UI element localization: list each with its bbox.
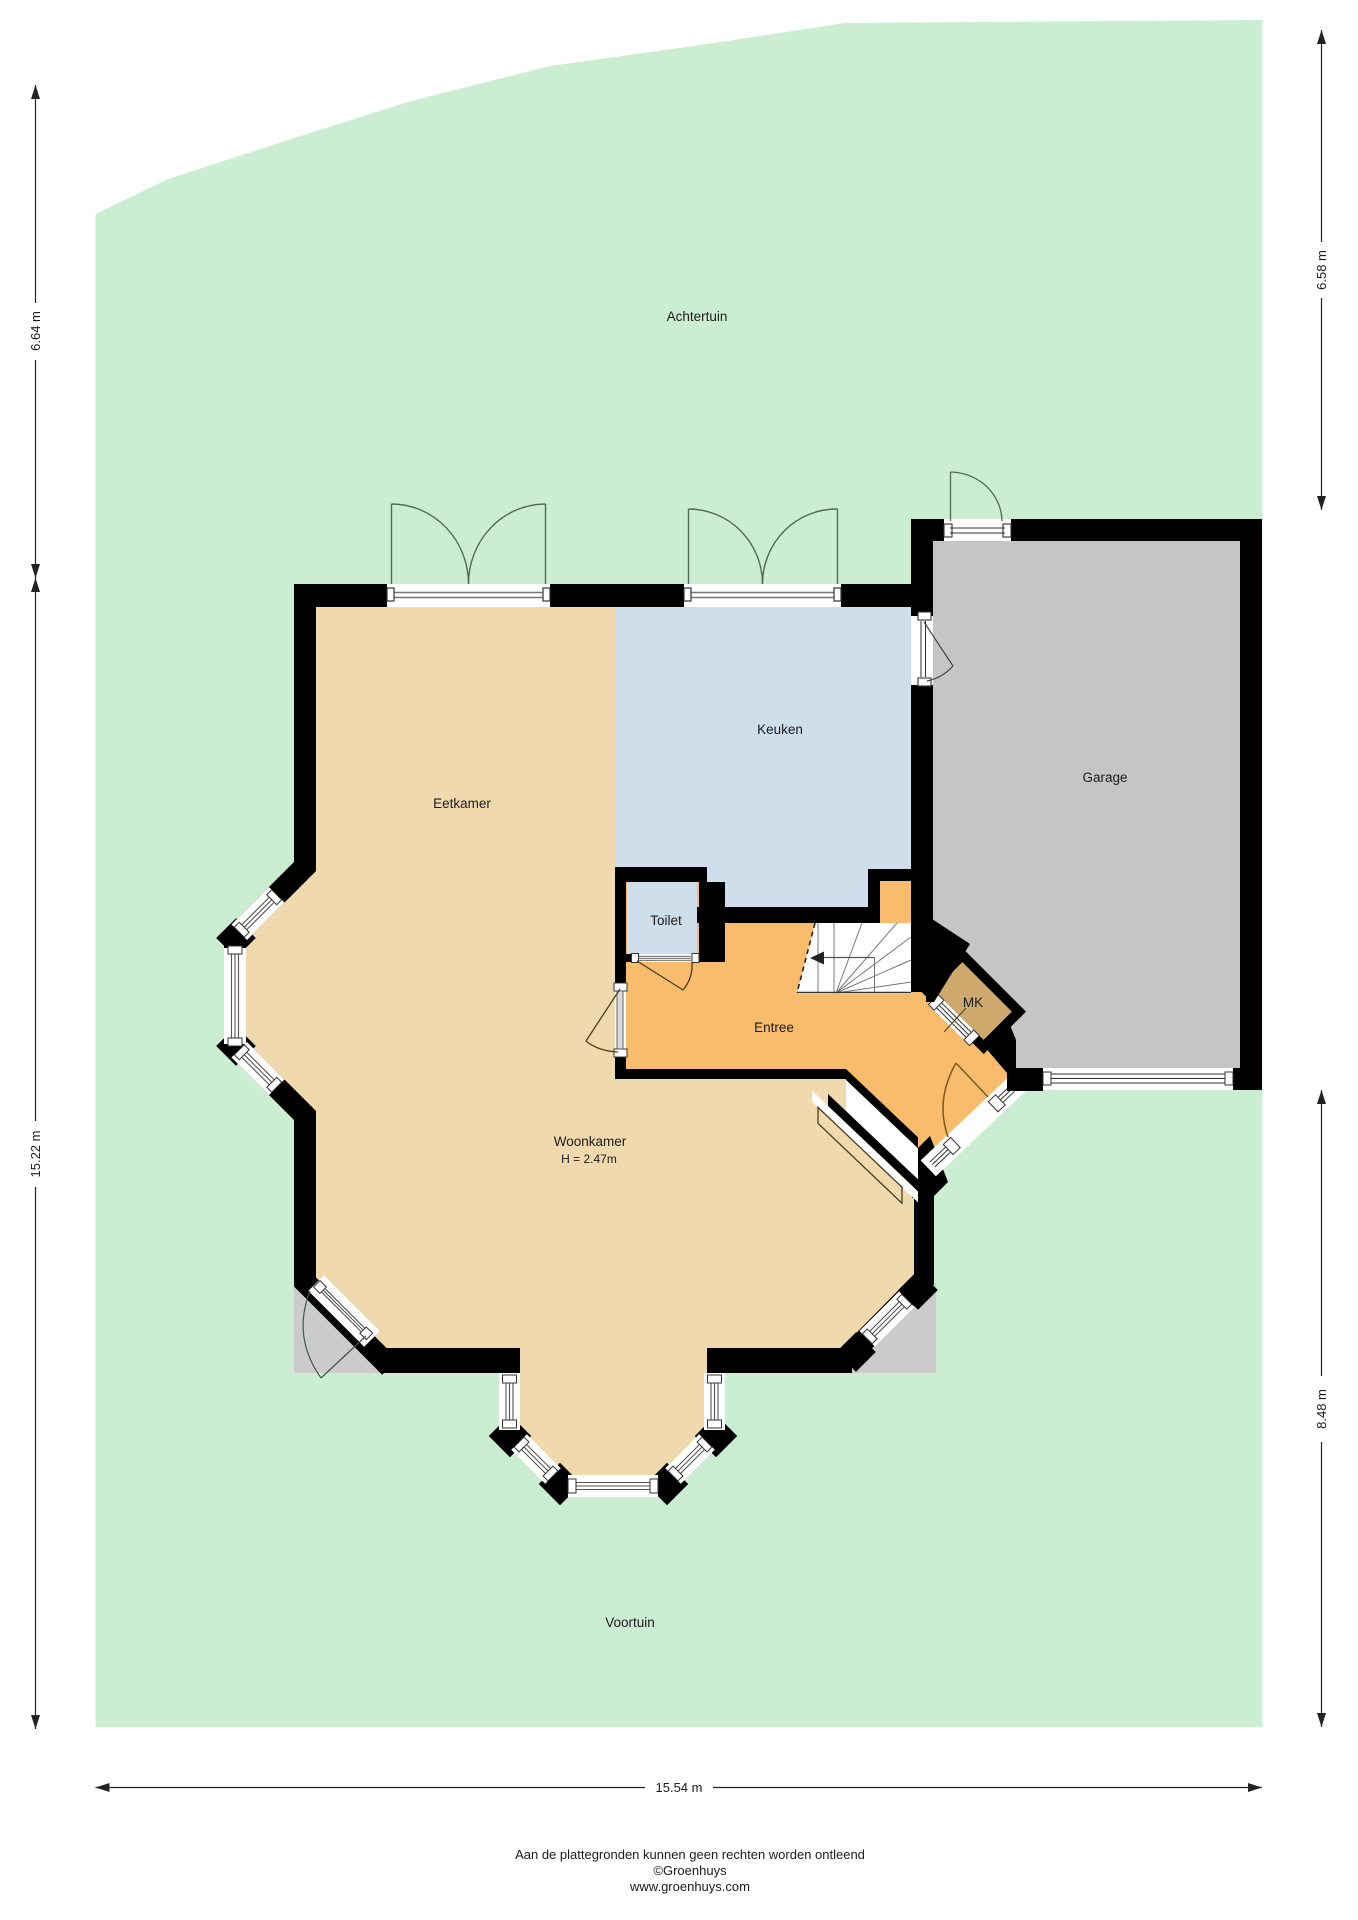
- svg-text:Achtertuin: Achtertuin: [667, 309, 728, 324]
- svg-text:6.64 m: 6.64 m: [28, 311, 43, 351]
- svg-text:Aan de plattegronden kunnen ge: Aan de plattegronden kunnen geen rechten…: [515, 1847, 865, 1862]
- svg-text:15.54 m: 15.54 m: [656, 1780, 703, 1795]
- svg-text:Toilet: Toilet: [650, 913, 682, 928]
- svg-text:www.groenhuys.com: www.groenhuys.com: [629, 1879, 750, 1894]
- svg-text:MK: MK: [963, 995, 983, 1010]
- svg-text:6.58 m: 6.58 m: [1314, 250, 1329, 290]
- svg-text:Woonkamer: Woonkamer: [554, 1134, 627, 1149]
- svg-text:Voortuin: Voortuin: [605, 1615, 655, 1630]
- svg-text:8.48 m: 8.48 m: [1314, 1389, 1329, 1429]
- svg-text:Keuken: Keuken: [757, 722, 803, 737]
- svg-text:Eetkamer: Eetkamer: [433, 796, 491, 811]
- svg-text:©Groenhuys: ©Groenhuys: [653, 1863, 727, 1878]
- svg-text:Garage: Garage: [1082, 770, 1127, 785]
- svg-text:H = 2.47m: H = 2.47m: [561, 1152, 617, 1166]
- svg-text:15.22 m: 15.22 m: [28, 1131, 43, 1178]
- svg-text:Entree: Entree: [754, 1020, 794, 1035]
